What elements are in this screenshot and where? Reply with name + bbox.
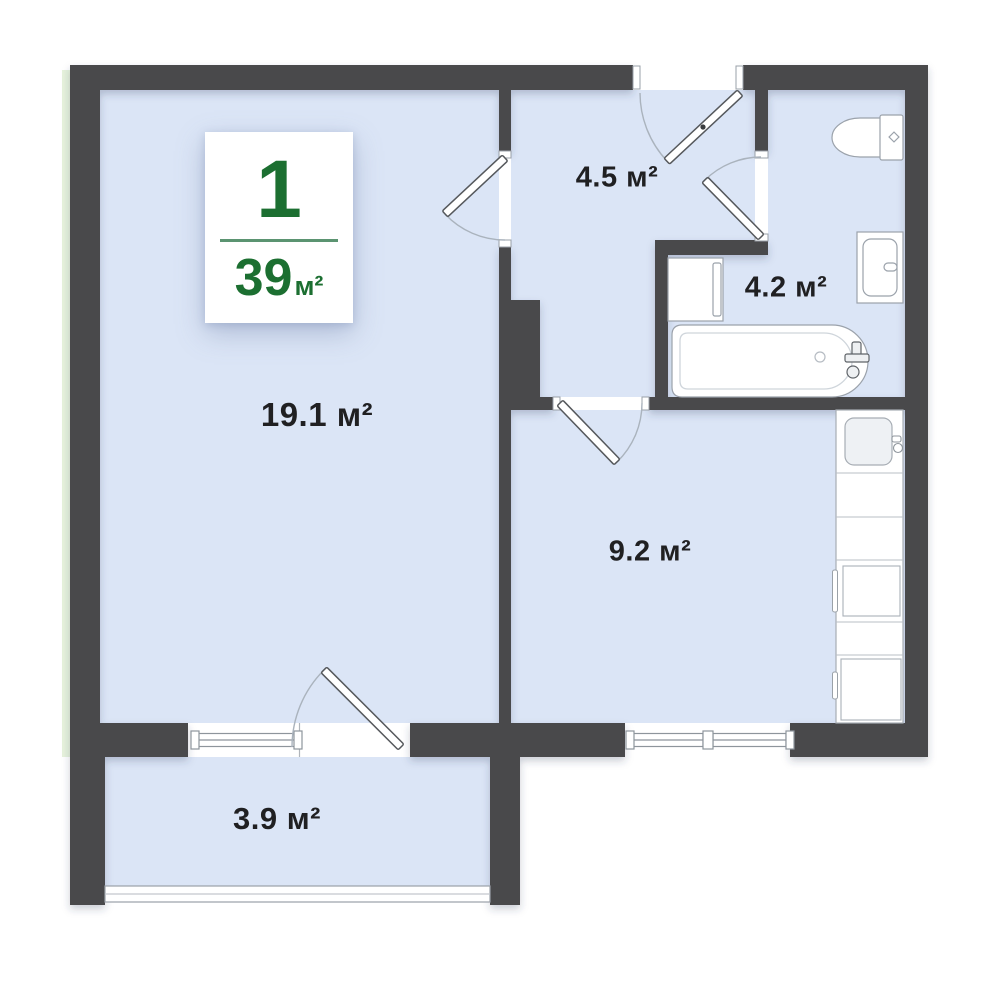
wall-top-left — [70, 65, 633, 90]
bathtub-rim — [672, 325, 868, 397]
toilet — [832, 115, 903, 160]
wall-right — [905, 65, 928, 757]
wall-bottom-b — [410, 723, 625, 757]
total-area-value: 39 — [235, 252, 293, 304]
floor-plan: 1 39 м² 19.1 м² 4.5 м² 4.2 м² 9.2 м² 3.9… — [0, 0, 1000, 1000]
wall-bathroom-bottom — [649, 397, 905, 410]
kitchen-counter — [833, 410, 904, 723]
washing-machine — [668, 258, 723, 321]
refrigerator-handle — [833, 672, 838, 699]
refrigerator — [841, 659, 901, 720]
oven-handle — [833, 570, 838, 612]
total-area-row: 39 м² — [235, 252, 324, 304]
wall-central-top — [499, 90, 511, 151]
bathtub-drain — [815, 352, 825, 362]
entrance-door-handle — [700, 124, 705, 129]
toilet-bowl — [832, 118, 882, 157]
wall-bathroom-left — [655, 255, 668, 397]
living-room-window — [191, 723, 302, 757]
room-label-kitchen: 9.2 м² — [609, 536, 691, 569]
wall-central — [499, 247, 511, 723]
floor-plan-graphics — [0, 0, 1000, 1000]
apartment-badge: 1 39 м² — [205, 132, 353, 323]
oven — [843, 566, 900, 616]
room-label-living-room: 19.1 м² — [261, 396, 373, 434]
kitchen-sink — [845, 418, 892, 465]
wall-balcony-right — [490, 757, 520, 905]
kitchen-window — [626, 731, 794, 749]
wall-top-right — [743, 65, 928, 90]
wall-bathroom-entry — [755, 90, 768, 151]
left-edge-accent — [62, 70, 70, 757]
wall-hall-kitchen — [511, 397, 553, 410]
bathtub — [672, 325, 869, 397]
total-area-unit: м² — [294, 273, 323, 300]
wall-bathroom-top — [655, 240, 768, 255]
wall-left — [70, 65, 100, 757]
wall-bottom-a — [100, 723, 188, 757]
badge-divider — [220, 239, 338, 242]
floor-areas — [62, 70, 905, 886]
wall-bottom-c — [790, 723, 928, 757]
room-label-hallway: 4.5 м² — [576, 162, 658, 195]
room-label-balcony: 3.9 м² — [233, 801, 321, 837]
bathroom-sink — [857, 232, 903, 303]
wall-balcony-left — [70, 757, 105, 905]
balcony-glazing — [105, 886, 490, 902]
wall-column — [511, 300, 540, 397]
room-label-bathroom: 4.2 м² — [745, 272, 827, 305]
entrance-opening — [633, 65, 743, 90]
room-count: 1 — [256, 151, 302, 229]
